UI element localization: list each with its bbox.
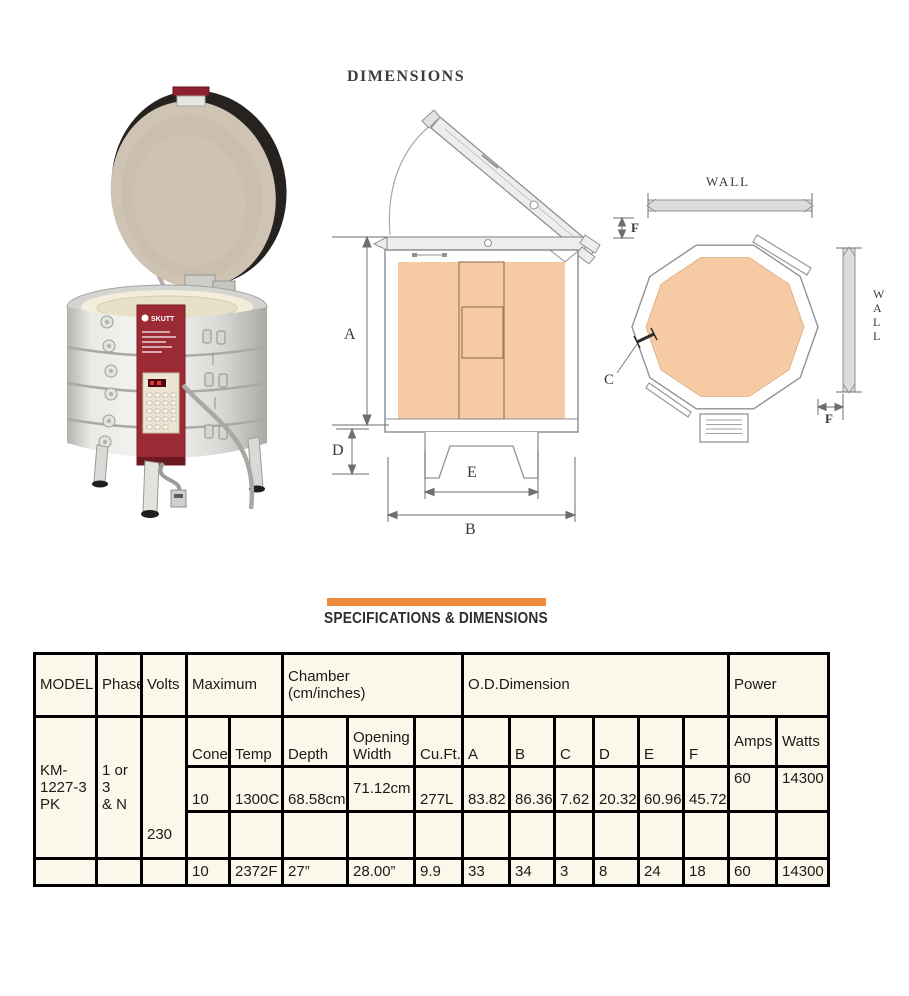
label-f-bottom: F bbox=[825, 411, 833, 427]
center-column-box bbox=[462, 307, 503, 358]
cell-metric-cone: 10 bbox=[187, 767, 230, 812]
cell-metric-d: 20.32 bbox=[594, 767, 639, 812]
power-plug bbox=[171, 490, 186, 507]
cell-imperial-b: 34 bbox=[510, 859, 555, 886]
empty-cell bbox=[348, 812, 415, 859]
brand-logo-mark bbox=[142, 315, 149, 322]
kiln-photo-art: SKUTT bbox=[45, 85, 295, 530]
cell-volts-value: 230 bbox=[142, 717, 187, 859]
header-model: MODEL bbox=[35, 654, 97, 717]
cell-metric-cuft: 277L bbox=[415, 767, 463, 812]
label-b: B bbox=[465, 521, 476, 539]
dim-b bbox=[388, 457, 575, 522]
cell-metric-b: 86.36 bbox=[510, 767, 555, 812]
label-d: D bbox=[332, 442, 344, 460]
top-slot-end bbox=[442, 253, 447, 257]
subheader-b: B bbox=[510, 717, 555, 767]
kiln-stand bbox=[425, 432, 538, 478]
cell-model-value: KM- 1227-3 PK bbox=[35, 717, 97, 859]
label-a: A bbox=[344, 326, 356, 344]
subheader-cuft: Cu.Ft. bbox=[415, 717, 463, 767]
cell-imperial-watts: 14300 bbox=[777, 859, 829, 886]
empty-cell bbox=[684, 812, 729, 859]
empty-cell bbox=[142, 859, 187, 886]
cell-imperial-amps: 60 bbox=[729, 859, 777, 886]
cell-metric-f: 45.72 bbox=[684, 767, 729, 812]
top-view-diagram: WALL F C W A L L F bbox=[600, 170, 909, 460]
cell-metric-amps: 60 bbox=[729, 767, 777, 812]
empty-cell bbox=[463, 812, 510, 859]
subheader-c: C bbox=[555, 717, 594, 767]
empty-cell bbox=[97, 859, 142, 886]
specifications-table: MODEL Phase Volts Maximum Chamber (cm/in… bbox=[33, 652, 830, 887]
subheader-a: A bbox=[463, 717, 510, 767]
spec-sheet-page: DIMENSIONS bbox=[0, 0, 909, 996]
cell-metric-e: 60.96 bbox=[639, 767, 684, 812]
cell-metric-opening-width: 71.12cm bbox=[348, 767, 415, 812]
cell-imperial-depth: 27” bbox=[283, 859, 348, 886]
cell-imperial-opening-width: 28.00” bbox=[348, 859, 415, 886]
cell-imperial-a: 33 bbox=[463, 859, 510, 886]
empty-cell bbox=[639, 812, 684, 859]
wall-top-bar bbox=[647, 193, 813, 218]
cell-imperial-cone: 10 bbox=[187, 859, 230, 886]
brand-logo-text: SKUTT bbox=[151, 316, 175, 323]
top-slot-end bbox=[412, 253, 417, 257]
kiln-photo: SKUTT bbox=[45, 85, 295, 530]
cell-metric-a: 83.82 bbox=[463, 767, 510, 812]
dim-a bbox=[332, 237, 389, 425]
subheader-watts: Watts bbox=[777, 717, 829, 767]
cell-metric-c: 7.62 bbox=[555, 767, 594, 812]
header-chamber: Chamber (cm/inches) bbox=[283, 654, 463, 717]
top-view-art bbox=[600, 170, 909, 460]
label-f-top: F bbox=[631, 220, 639, 236]
empty-cell bbox=[35, 859, 97, 886]
subheader-e: E bbox=[639, 717, 684, 767]
subheader-depth: Depth bbox=[283, 717, 348, 767]
led-digit bbox=[157, 381, 161, 385]
empty-cell bbox=[777, 812, 829, 859]
header-od-dimension: O.D.Dimension bbox=[463, 654, 729, 717]
label-c: C bbox=[604, 372, 614, 389]
cell-imperial-temp: 2372F bbox=[230, 859, 283, 886]
empty-cell bbox=[555, 812, 594, 859]
led-digit bbox=[150, 381, 154, 385]
cell-imperial-d: 8 bbox=[594, 859, 639, 886]
header-volts: Volts bbox=[142, 654, 187, 717]
label-e: E bbox=[467, 464, 477, 482]
empty-cell bbox=[594, 812, 639, 859]
subheader-cone: Cone bbox=[187, 717, 230, 767]
header-power: Power bbox=[729, 654, 829, 717]
power-plug-face bbox=[174, 494, 183, 498]
cell-imperial-f: 18 bbox=[684, 859, 729, 886]
lid-swing-arc bbox=[389, 119, 438, 235]
cell-imperial-cuft: 9.9 bbox=[415, 859, 463, 886]
empty-cell bbox=[187, 812, 230, 859]
header-phase: Phase bbox=[97, 654, 142, 717]
subheader-temp: Temp bbox=[230, 717, 283, 767]
lid-bar-hole bbox=[485, 240, 492, 247]
wall-top-label: WALL bbox=[706, 174, 750, 190]
cell-phase-value: 1 or 3 & N bbox=[97, 717, 142, 859]
open-lid-edge bbox=[445, 129, 582, 244]
dimensions-heading: DIMENSIONS bbox=[347, 68, 465, 86]
orange-accent-bar bbox=[327, 598, 546, 606]
empty-cell bbox=[283, 812, 348, 859]
cell-metric-watts: 14300 bbox=[777, 767, 829, 812]
lid-hole bbox=[530, 201, 538, 209]
empty-cell bbox=[729, 812, 777, 859]
subheader-amps: Amps bbox=[729, 717, 777, 767]
lid-handle-bracket bbox=[177, 96, 205, 106]
lid-bar-tip bbox=[374, 237, 387, 250]
subheader-f: F bbox=[684, 717, 729, 767]
cell-imperial-c: 3 bbox=[555, 859, 594, 886]
empty-cell bbox=[510, 812, 555, 859]
kiln-chamber-fill bbox=[646, 258, 804, 397]
specifications-heading: SPECIFICATIONS & DIMENSIONS bbox=[324, 610, 548, 628]
kiln-lid bbox=[92, 85, 295, 303]
side-view-diagram: A D E B bbox=[332, 95, 617, 550]
lid-handle bbox=[173, 87, 209, 96]
empty-cell bbox=[230, 812, 283, 859]
wall-right-label: W A L L bbox=[873, 287, 884, 343]
subheader-opening-width: Opening Width bbox=[348, 717, 415, 767]
empty-cell bbox=[415, 812, 463, 859]
cell-metric-depth: 68.58cm bbox=[283, 767, 348, 812]
control-box bbox=[700, 414, 748, 442]
subheader-d: D bbox=[594, 717, 639, 767]
wall-right-bar bbox=[836, 247, 862, 393]
cell-imperial-e: 24 bbox=[639, 859, 684, 886]
header-maximum: Maximum bbox=[187, 654, 283, 717]
cell-metric-temp: 1300C bbox=[230, 767, 283, 812]
